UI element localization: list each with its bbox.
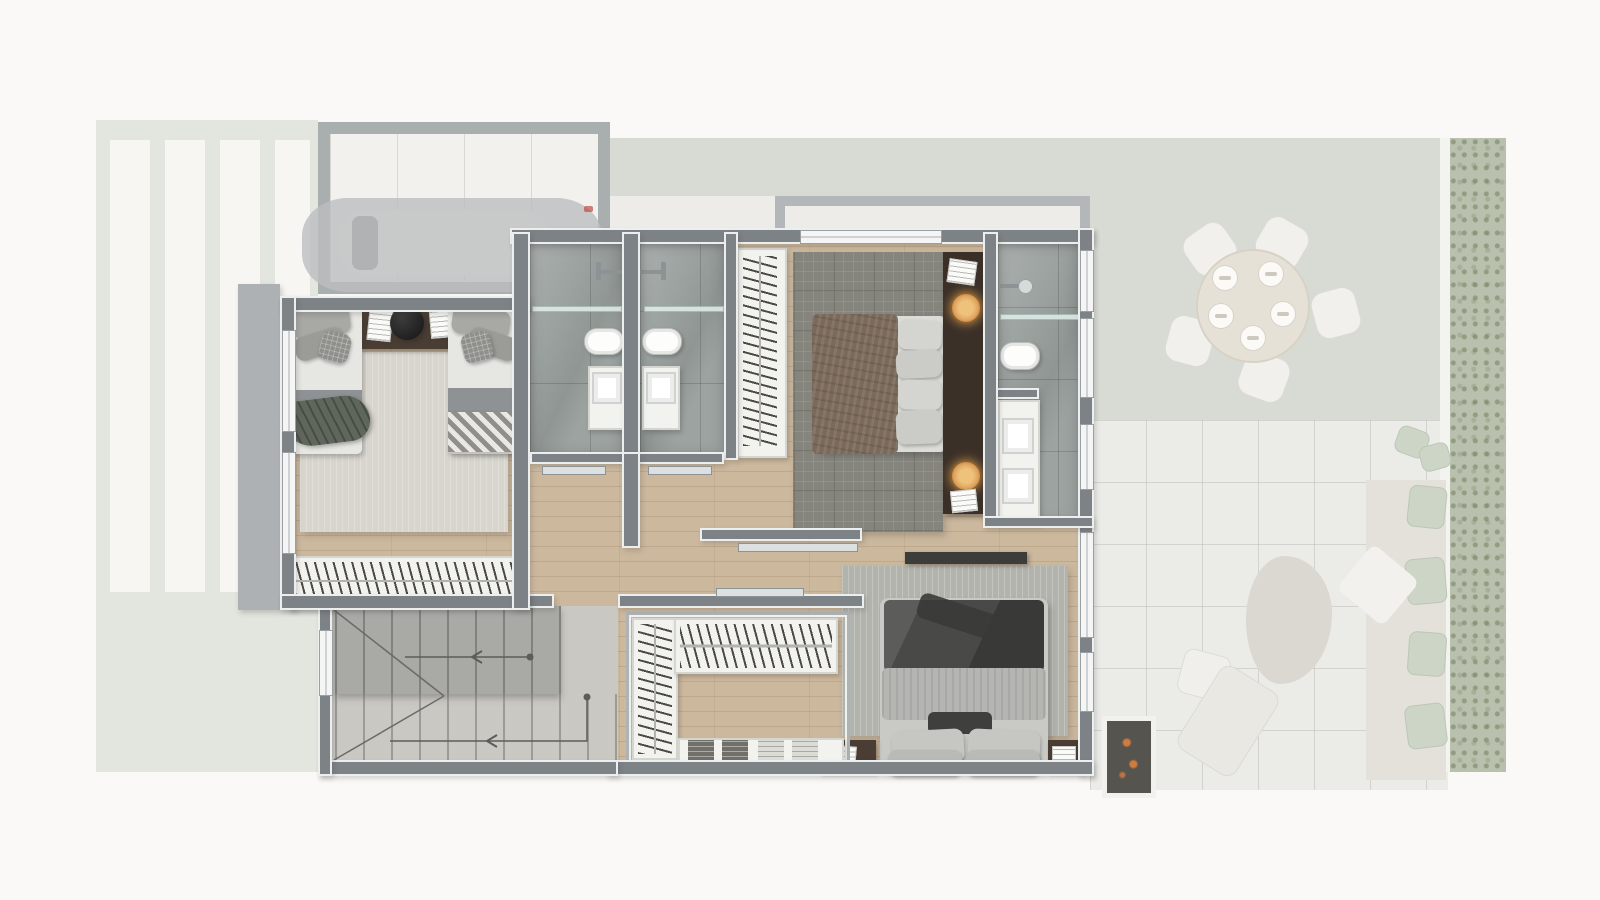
console-book [950,489,978,514]
window [1080,532,1094,638]
place-setting [1240,325,1266,351]
sliding-door [738,543,858,552]
folded-clothes [792,740,818,762]
window [1080,318,1094,398]
stair-guide-svg [322,606,618,764]
folded-clothes [688,740,714,762]
pocket-door [648,466,712,475]
wall-corridor [622,452,640,548]
master-closet-rack [737,248,787,458]
courtyard-lawn-top [610,138,1090,196]
floor-plan-scene [0,0,1600,900]
sofa-cushion [1407,631,1448,678]
wall-stairs-bottom [318,760,618,776]
window [319,630,333,696]
glass-shelf [644,306,724,312]
hanging-clothes [680,624,832,668]
vanity-sink [592,372,622,404]
wall-bottom-main [606,760,1094,776]
sofa-cushion [1406,484,1448,530]
car-taillight [584,206,593,212]
pendant-lamp [950,292,982,324]
car-windshield [352,216,378,270]
window [282,452,296,554]
place-setting [1208,303,1234,329]
place-setting [1212,265,1238,291]
pendant-lamp [950,460,982,492]
balcony-ledge [238,284,280,610]
master-pillow [895,349,942,379]
wall-under-master [700,528,862,541]
toilet [642,328,682,355]
place-setting [1270,301,1296,327]
glass-shelf [532,306,622,312]
wall-twin-top [280,296,530,312]
hanging-clothes [638,624,672,754]
vanity-sink [1002,468,1034,504]
hanging-clothes [743,256,777,446]
wall-master-ensuite [983,232,998,522]
toilet [584,328,624,355]
wall-under-ensuite [983,516,1094,528]
pocket-door [542,466,606,475]
closet-rack-top [674,618,838,674]
window [1080,424,1094,490]
shower-arm [598,270,624,274]
place-setting [1258,261,1284,287]
wall-twin-bottom [280,594,530,610]
window [800,230,942,244]
toilet [1000,342,1040,370]
wall-twin-right [512,232,530,610]
sofa-cushion [1403,702,1448,751]
folded-clothes [758,740,784,762]
hedge [1450,138,1506,772]
master-pillow [895,409,942,445]
console-book [946,258,977,286]
dining-table [1196,249,1310,363]
shower-arm [640,270,666,274]
wall-bath-divider [622,232,640,460]
window [1080,652,1094,712]
vanity-sink [1002,418,1034,454]
shower-head [1018,279,1033,294]
tv-console [905,552,1027,564]
vanity-sink [646,372,676,404]
glass-shelf [1000,314,1080,320]
master-pillow [897,379,942,411]
bbq-grill [1102,716,1156,798]
window [282,330,296,432]
wall-bath2-right [724,232,738,460]
folded-clothes [722,740,748,762]
master-pillow [897,319,943,351]
stair-guides [322,606,618,764]
chevron-blanket [448,412,522,452]
pocket-door [716,588,804,597]
ensuite-partition [993,388,1039,399]
closet-rack-vertical [632,618,678,760]
brown-duvet [812,314,898,454]
window [1080,250,1094,312]
throw-band [448,388,522,414]
